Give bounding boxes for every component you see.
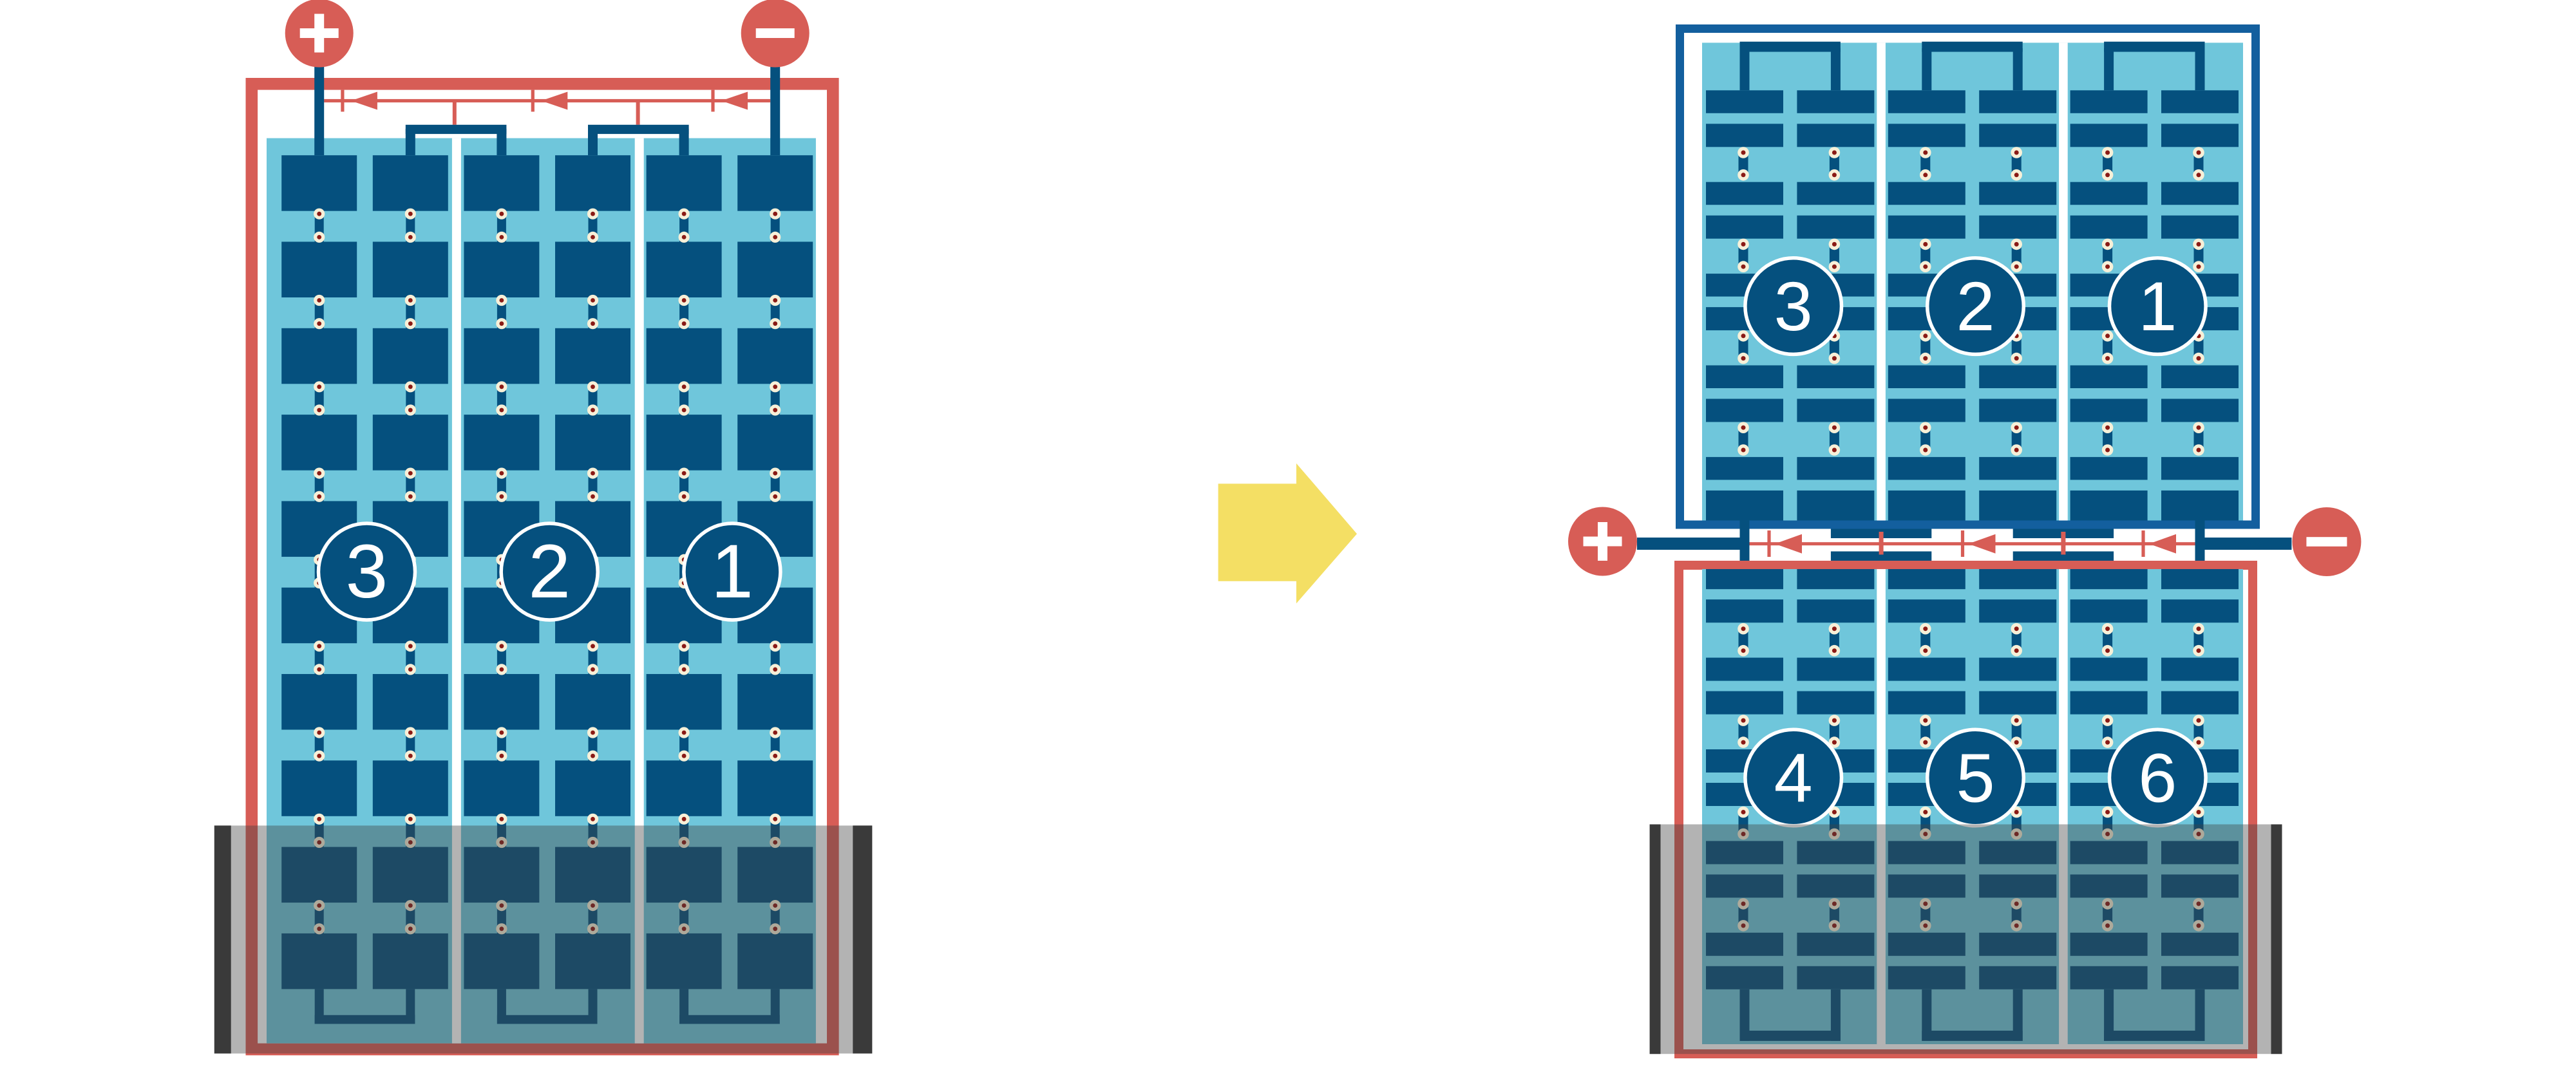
svg-text:2: 2: [528, 529, 571, 614]
svg-text:3: 3: [1774, 267, 1813, 345]
svg-text:1: 1: [2138, 267, 2177, 345]
svg-text:4: 4: [1774, 739, 1813, 817]
svg-text:1: 1: [711, 529, 753, 614]
svg-text:2: 2: [1956, 267, 1994, 345]
svg-text:6: 6: [2138, 739, 2177, 817]
svg-text:5: 5: [1956, 739, 1994, 817]
svg-text:3: 3: [346, 529, 388, 614]
